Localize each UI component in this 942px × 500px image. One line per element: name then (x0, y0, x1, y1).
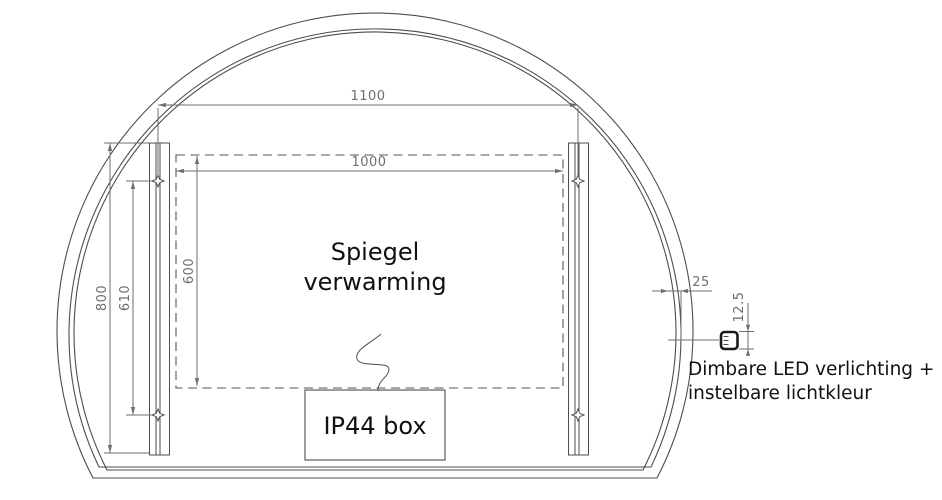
arrow-down-icon (108, 445, 112, 453)
power-cable-icon (357, 334, 389, 391)
right-strip-channel (575, 143, 579, 455)
arrow-left-icon (176, 169, 184, 173)
arrow-down-icon (195, 378, 199, 386)
overall-width-value: 1100 (350, 89, 385, 104)
dim-heating-height: 600 (182, 156, 199, 386)
ip44-box: IP44 box (305, 390, 445, 460)
arrow-left-icon (158, 103, 166, 107)
arrow-up-icon (131, 181, 135, 189)
led-note: Dimbare LED verlichting + instelbare lic… (688, 359, 934, 404)
left-mounting-strip (150, 143, 170, 455)
arrow-right-icon (555, 169, 563, 173)
right-mounting-strip (569, 143, 589, 455)
ip44-box-label: IP44 box (323, 412, 426, 440)
arrow-down-icon (746, 325, 750, 332)
heating-height-value: 600 (182, 258, 197, 284)
screw-icon (572, 175, 584, 187)
screw-icon (152, 175, 164, 187)
heating-width-value: 1000 (351, 155, 386, 170)
led-inset-value: 25 (692, 275, 710, 290)
led-profile-height-value: 12.5 (732, 292, 747, 323)
strip-length-value: 800 (95, 285, 110, 311)
screw-icon (152, 409, 164, 421)
arrow-right-icon (661, 289, 668, 293)
led-profile-icon (721, 332, 738, 349)
arrow-up-icon (746, 349, 750, 356)
heating-label-line1: Spiegel (331, 238, 420, 266)
dim-lines (652, 291, 712, 340)
technical-drawing-mirror: 1100 1000 600 800 610 Spiegel verwarming (0, 0, 942, 500)
dim-heating-width: 1000 (176, 155, 563, 173)
led-profile-detail (668, 332, 738, 349)
dim-hole-spacing: 610 (118, 181, 152, 415)
led-note-line2: instelbare lichtkleur (688, 383, 872, 404)
drawing-canvas: 1100 1000 600 800 610 Spiegel verwarming (0, 0, 942, 500)
arrow-up-icon (195, 156, 199, 164)
hole-spacing-value: 610 (118, 285, 133, 311)
arrow-up-icon (108, 143, 112, 151)
arrow-down-icon (131, 407, 135, 415)
screw-icon (572, 409, 584, 421)
led-note-line1: Dimbare LED verlichting + (688, 359, 934, 380)
heating-label-line2: verwarming (303, 268, 446, 296)
arrow-left-icon (681, 289, 688, 293)
heating-label: Spiegel verwarming (303, 238, 446, 296)
dim-led-inset: 25 (652, 275, 712, 340)
